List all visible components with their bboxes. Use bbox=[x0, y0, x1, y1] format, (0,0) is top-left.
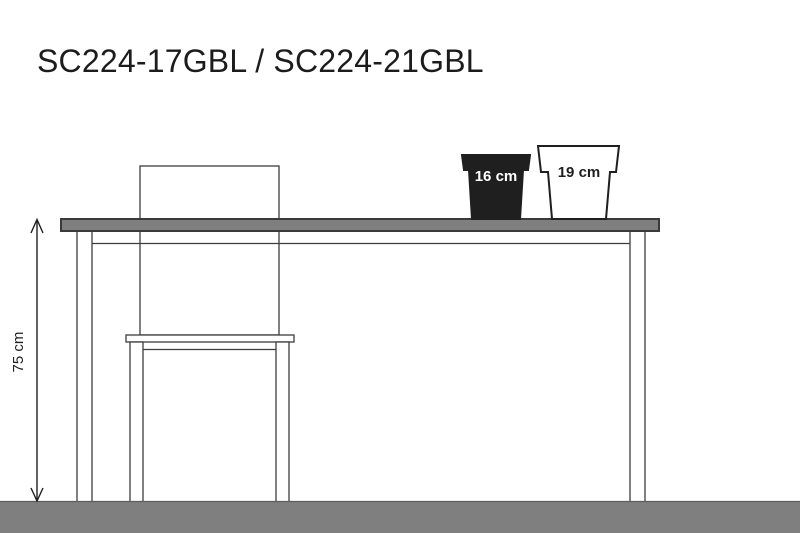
chair-leg-right bbox=[276, 342, 289, 502]
chair-leg-left bbox=[130, 342, 143, 502]
table-leg-left bbox=[77, 230, 92, 502]
table-top bbox=[61, 219, 659, 231]
pot-16cm bbox=[462, 155, 530, 219]
diagram-canvas: 16 cm 19 cm 75 cm bbox=[0, 0, 800, 533]
height-dimension-label: 75 cm bbox=[10, 332, 27, 373]
floor bbox=[0, 502, 800, 533]
pot-19cm-label: 19 cm bbox=[558, 164, 601, 181]
table-leg-right bbox=[630, 230, 645, 502]
pot-16cm-label: 16 cm bbox=[475, 168, 518, 185]
chair-backrest bbox=[140, 166, 279, 335]
chair-seat bbox=[126, 335, 294, 342]
product-dimension-sheet: SC224-17GBL / SC224-21GBL 16 cm 19 cm bbox=[0, 0, 800, 533]
pot-19cm bbox=[538, 146, 619, 219]
